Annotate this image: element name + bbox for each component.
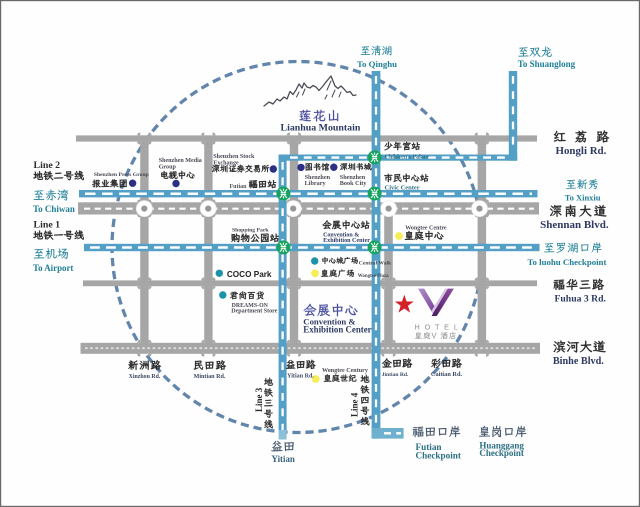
svg-text:Futian: Futian (230, 184, 248, 190)
svg-text:Shennan Blvd.: Shennan Blvd. (540, 219, 609, 231)
svg-text:Line 2: Line 2 (34, 160, 61, 171)
svg-text:Wongtee Plaza: Wongtee Plaza (358, 274, 389, 279)
svg-text:Department Store: Department Store (231, 309, 277, 315)
svg-text:Wongtee Centre: Wongtee Centre (405, 226, 447, 232)
svg-text:Hongli Rd.: Hongli Rd. (556, 145, 607, 157)
svg-text:Line 4: Line 4 (350, 392, 360, 417)
svg-text:Exchange: Exchange (213, 160, 239, 166)
svg-text:H O T E L: H O T E L (415, 323, 460, 332)
svg-text:Wongtee Century: Wongtee Century (322, 368, 368, 374)
svg-text:Line 3: Line 3 (254, 387, 264, 412)
svg-text:Group: Group (159, 164, 177, 170)
svg-text:Caitian Rd.: Caitian Rd. (431, 371, 463, 378)
svg-text:Fuhua 3 Rd.: Fuhua 3 Rd. (555, 294, 606, 305)
svg-text:To Chiwan: To Chiwan (33, 204, 75, 214)
svg-text:Shenzhen Press Group: Shenzhen Press Group (94, 172, 149, 178)
svg-text:Children's Palace: Children's Palace (385, 155, 430, 161)
svg-text:Exhibition Center: Exhibition Center (323, 238, 370, 244)
svg-text:Central Walk: Central Walk (359, 261, 392, 267)
svg-text:Shenzhen Stock: Shenzhen Stock (213, 154, 255, 160)
svg-text:Lianhua Mountain: Lianhua Mountain (281, 123, 361, 134)
svg-text:Yitian: Yitian (272, 454, 295, 464)
svg-text:COCO Park: COCO Park (227, 270, 272, 279)
svg-text:Shopping Park: Shopping Park (232, 227, 269, 233)
svg-text:Jintian Rd.: Jintian Rd. (382, 372, 409, 378)
svg-text:To Shuanglong: To Shuanglong (518, 59, 576, 69)
svg-text:Exhibition Center: Exhibition Center (303, 324, 371, 334)
svg-text:To Qinghu: To Qinghu (357, 59, 397, 69)
svg-text:Checkpoint: Checkpoint (479, 448, 524, 458)
svg-text:Book City: Book City (340, 180, 368, 187)
svg-text:Library: Library (305, 180, 327, 187)
svg-text:Yitian Rd.: Yitian Rd. (287, 374, 314, 380)
svg-text:To luohu Checkpoint: To luohu Checkpoint (528, 257, 607, 267)
svg-text:Shenzhen Media: Shenzhen Media (159, 158, 202, 164)
svg-text:Checkpoint: Checkpoint (416, 450, 462, 460)
svg-text:To Airport: To Airport (33, 263, 73, 273)
svg-text:Mintian Rd.: Mintian Rd. (194, 374, 226, 380)
svg-text:Line 1: Line 1 (34, 220, 61, 231)
svg-text:Civic Center: Civic Center (385, 185, 420, 192)
svg-text:To Xinxiu: To Xinxiu (565, 192, 601, 202)
svg-text:Binhe Blvd.: Binhe Blvd. (553, 356, 604, 367)
svg-text:Xinzhou Rd.: Xinzhou Rd. (129, 374, 161, 380)
